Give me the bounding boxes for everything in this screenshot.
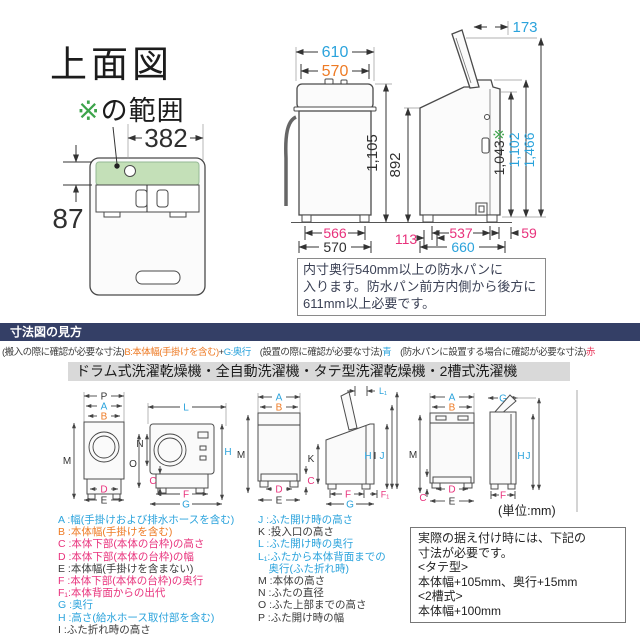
legend-item: D :本体下部(本体の台枠)の幅 (58, 551, 234, 563)
label-m: M (237, 450, 245, 461)
label-l1: L₁ (379, 386, 387, 396)
front-view-drawing (286, 79, 376, 222)
note-line: 入ります。防水パン前方内側から後方に (303, 278, 540, 295)
range-mark: ※ (77, 96, 101, 126)
dim-front-overhang: 59 (521, 225, 537, 241)
label-b: B (101, 412, 108, 423)
label-h: H (224, 447, 231, 458)
machine-types-bar: ドラム式洗濯乾燥機・全自動洗濯機・タテ型洗濯乾燥機・2槽式洗濯機 (68, 362, 570, 381)
diagram-drum-side: L N O H C F G (129, 403, 232, 511)
highlight-range-area (96, 162, 199, 185)
label-m: M (409, 450, 417, 461)
label-l: L (183, 403, 189, 414)
legend-item: K :投入口の高さ (258, 526, 386, 538)
legend-item: F₁:本体背面からの出代 (58, 587, 234, 599)
dim-top-range-height: 87 (52, 203, 83, 234)
label-g: G (346, 500, 354, 511)
label-o: O (129, 459, 137, 470)
legend-item: O :ふた上部までの高さ (258, 599, 386, 611)
page-title: 上面図 (50, 34, 173, 88)
dim-side-height-body: 892 (387, 152, 404, 177)
dim-front-bottom-width: 570 (323, 239, 347, 255)
unit-label: (単位:mm) (498, 500, 556, 519)
dim-depth-total: 660 (451, 239, 475, 255)
legend-item: B :本体幅(手掛けを含む) (58, 526, 234, 538)
label-f1: F₁ (381, 490, 390, 500)
dim-height-lid-open: 1,466 (521, 132, 537, 167)
installation-note-box: 実際の据え付け時には、下記の 寸法が必要です。 <タテ型> 本体幅+105mm、… (410, 527, 626, 623)
label-e: E (449, 497, 456, 508)
legend-item: A :幅(手掛けおよび排水ホースを含む) (58, 514, 234, 526)
drain-hose (286, 117, 296, 206)
legend-item: L₁:ふたから本体背面までの (258, 551, 386, 563)
legend-item: L :ふた開け時の奥行 (258, 538, 386, 550)
label-d: D (448, 485, 455, 496)
install-line: 本体幅+105mm、奥行+15mm (418, 575, 618, 590)
legend-column-right: J :ふた開け時の高さ K :投入口の高さ L :ふた開け時の奥行 L₁:ふたか… (258, 514, 386, 624)
legend-span: (防水パンに設置する場合に確認が必要な寸法) (391, 347, 586, 358)
dimension-diagram-page: 382 87 610 (0, 0, 640, 640)
diagram-twin-side: G H J F (488, 394, 539, 502)
dim-lid-projection: 173 (512, 19, 537, 36)
legend-item: C :本体下部(本体の台枠)の高さ (58, 538, 234, 550)
label-i: I (374, 451, 377, 462)
legend-span: B:本体幅(手掛けを含む) (124, 347, 218, 358)
legend-item: H :高さ(給水ホース取付部を含む) (58, 612, 234, 624)
legend-item: P :ふた開け時の幅 (258, 612, 386, 624)
diagram-vertical-front: A B M C D E (237, 393, 315, 507)
mini-diagrams: P A B M D E L (0, 381, 640, 515)
dim-front-width-body: 570 (322, 63, 349, 80)
label-e: E (101, 496, 108, 507)
label-j: J (380, 451, 385, 462)
legend-color-key-line: (搬入の際に確認が必要な寸法)B:本体幅(手掛けを含む)+G:奥行 (設置の際に… (2, 344, 640, 358)
dim-rear-clearance: 113 (395, 231, 418, 247)
range-suffix: の範囲 (101, 96, 185, 126)
label-g: G (182, 500, 190, 511)
waterproof-pan-note: 内寸奥行540mm以上の防水パンに 入ります。防水パン前方内側から後方に 611… (297, 258, 546, 316)
install-line: 実際の据え付け時には、下記の (418, 531, 618, 546)
diagram-twin-front: A B M C D E (409, 393, 474, 508)
dim-front-width-outer: 610 (322, 44, 349, 61)
label-m: M (63, 456, 71, 467)
legend-item: J :ふた開け時の高さ (258, 514, 386, 526)
note-line: 611mm以上必要です。 (303, 295, 540, 312)
range-pointer-dot (114, 163, 119, 168)
install-line: <タテ型> (418, 560, 618, 575)
legend-span: 赤 (586, 347, 595, 358)
dim-height-ref-mark: ※ (491, 129, 507, 141)
legend-column-left: A :幅(手掛けおよび排水ホースを含む) B :本体幅(手掛けを含む) C :本… (58, 514, 234, 636)
legend-item: 奥行(ふた折れ時) (258, 563, 386, 575)
label-h: H (517, 451, 524, 462)
legend-item: F :本体下部(本体の台枠)の奥行 (58, 575, 234, 587)
label-d: D (275, 485, 282, 496)
note-line: 内寸奥行540mm以上の防水パンに (303, 261, 540, 278)
legend-span: (設置の際に確認が必要な寸法) (251, 347, 382, 358)
legend-span: 青 (382, 347, 391, 358)
legend-span: G:奥行 (224, 347, 251, 358)
dim-height-ref-value: 1,043 (491, 140, 507, 175)
section-header: 寸法図の見方 (0, 323, 640, 341)
label-b: B (276, 403, 283, 414)
legend-item: M :本体の高さ (258, 575, 386, 587)
diagram-vertical-side: L₁ K H I J F F₁ G (308, 386, 397, 511)
label-c: C (419, 493, 426, 504)
install-line: 本体幅+100mm (418, 604, 618, 619)
label-j: J (526, 451, 531, 462)
legend-span: (搬入の際に確認が必要な寸法) (2, 347, 124, 358)
label-e: E (276, 496, 283, 507)
label-c: C (149, 476, 156, 487)
dim-height-lid: 1,102 (506, 132, 522, 167)
label-c: C (307, 476, 314, 487)
lid-handle (136, 271, 180, 284)
label-b: B (449, 403, 456, 414)
dim-front-height-total: 1,105 (364, 134, 381, 172)
diagram-drum-front: P A B M D E (63, 392, 124, 507)
side-view-drawing (420, 30, 500, 222)
install-line: 寸法が必要です。 (418, 546, 618, 561)
label-k: K (308, 454, 315, 465)
legend-item: G :奥行 (58, 599, 234, 611)
legend-item: N :ふたの直径 (258, 587, 386, 599)
dim-height-ref: 1,043※ (491, 129, 507, 176)
legend-item: E :本体幅(手掛けを含まない) (58, 563, 234, 575)
range-label: ※の範囲 (77, 89, 185, 128)
install-line: <2槽式> (418, 589, 618, 604)
label-d: D (100, 485, 107, 496)
label-h: H (364, 451, 371, 462)
label-n: N (136, 439, 143, 450)
legend-item: I :ふた折れ時の高さ (58, 624, 234, 636)
